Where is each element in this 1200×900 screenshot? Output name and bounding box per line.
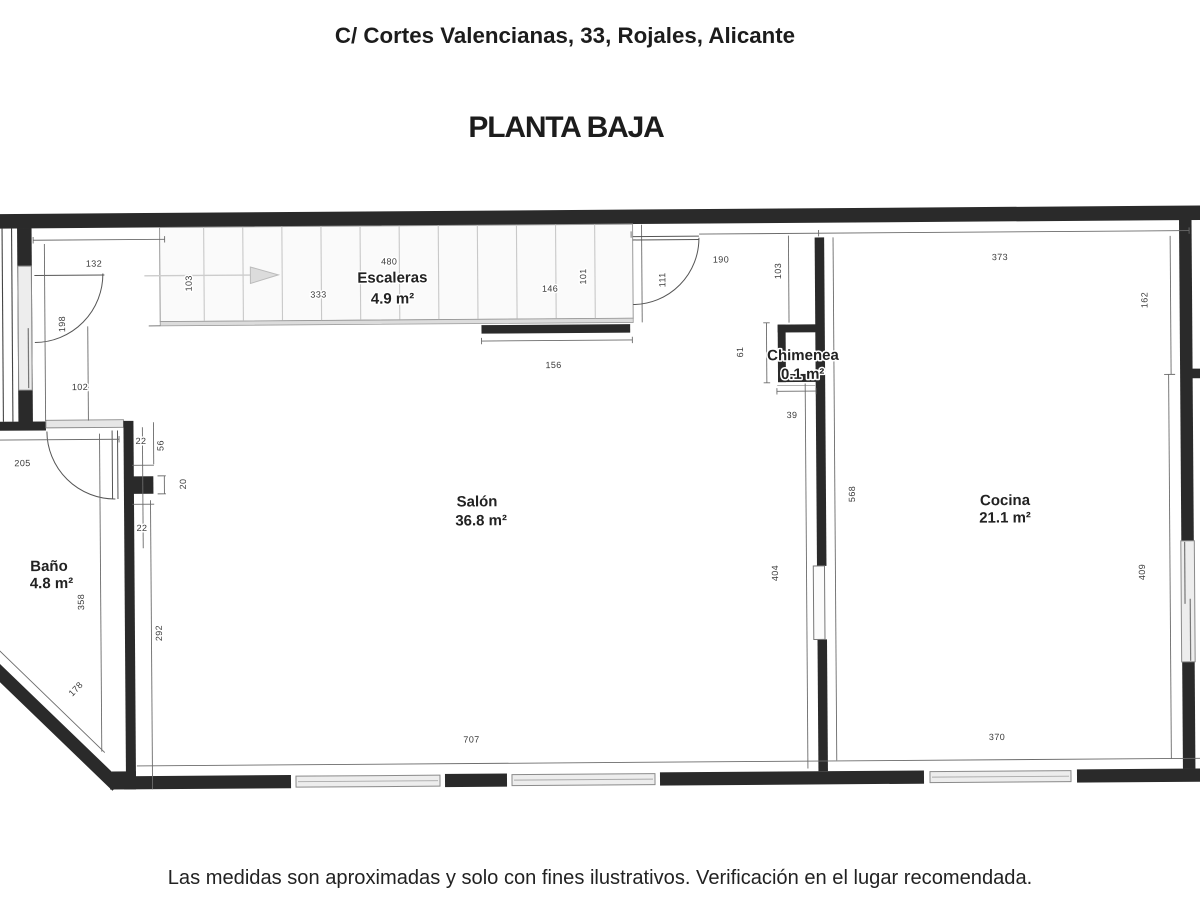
- svg-text:111: 111: [657, 272, 667, 287]
- svg-text:480: 480: [381, 256, 397, 266]
- svg-text:61: 61: [735, 347, 745, 358]
- svg-text:568: 568: [847, 486, 857, 502]
- svg-text:4.9 m²: 4.9 m²: [371, 290, 414, 307]
- svg-text:707: 707: [463, 734, 479, 744]
- svg-text:Baño: Baño: [30, 558, 68, 575]
- svg-text:198: 198: [57, 316, 67, 332]
- svg-text:156: 156: [545, 360, 561, 370]
- svg-text:56: 56: [155, 440, 165, 451]
- svg-text:36.8 m²: 36.8 m²: [455, 512, 507, 529]
- svg-text:132: 132: [86, 259, 102, 269]
- svg-text:146: 146: [542, 284, 558, 294]
- svg-text:404: 404: [770, 565, 780, 581]
- svg-text:205: 205: [14, 458, 30, 468]
- svg-text:409: 409: [1137, 564, 1147, 580]
- svg-text:370: 370: [989, 732, 1005, 742]
- svg-text:C/ Cortes Valencianas, 33, Roj: C/ Cortes Valencianas, 33, Rojales, Alic…: [335, 23, 795, 48]
- svg-text:162: 162: [1139, 292, 1149, 308]
- svg-text:103: 103: [773, 263, 783, 279]
- svg-text:22: 22: [137, 523, 148, 533]
- svg-text:333: 333: [310, 289, 326, 299]
- svg-text:Chimenea: Chimenea: [767, 347, 839, 365]
- svg-text:373: 373: [992, 252, 1008, 262]
- svg-text:Salón: Salón: [457, 493, 498, 510]
- svg-text:103: 103: [184, 275, 194, 291]
- svg-text:190: 190: [713, 254, 729, 264]
- svg-text:Las medidas son aproximadas y: Las medidas son aproximadas y solo con f…: [168, 867, 1033, 889]
- svg-text:22: 22: [136, 436, 147, 446]
- svg-text:292: 292: [154, 625, 164, 641]
- svg-text:358: 358: [76, 594, 86, 610]
- svg-text:21.1 m²: 21.1 m²: [979, 509, 1031, 526]
- svg-text:39: 39: [787, 410, 798, 420]
- svg-text:Escaleras: Escaleras: [357, 269, 427, 287]
- svg-text:4.8 m²: 4.8 m²: [30, 575, 73, 592]
- svg-text:101: 101: [578, 268, 588, 284]
- svg-text:PLANTA BAJA: PLANTA BAJA: [468, 111, 664, 144]
- svg-text:102: 102: [72, 382, 88, 392]
- svg-text:20: 20: [178, 479, 188, 490]
- svg-text:Cocina: Cocina: [980, 492, 1031, 509]
- svg-text:0.1 m²: 0.1 m²: [781, 366, 824, 383]
